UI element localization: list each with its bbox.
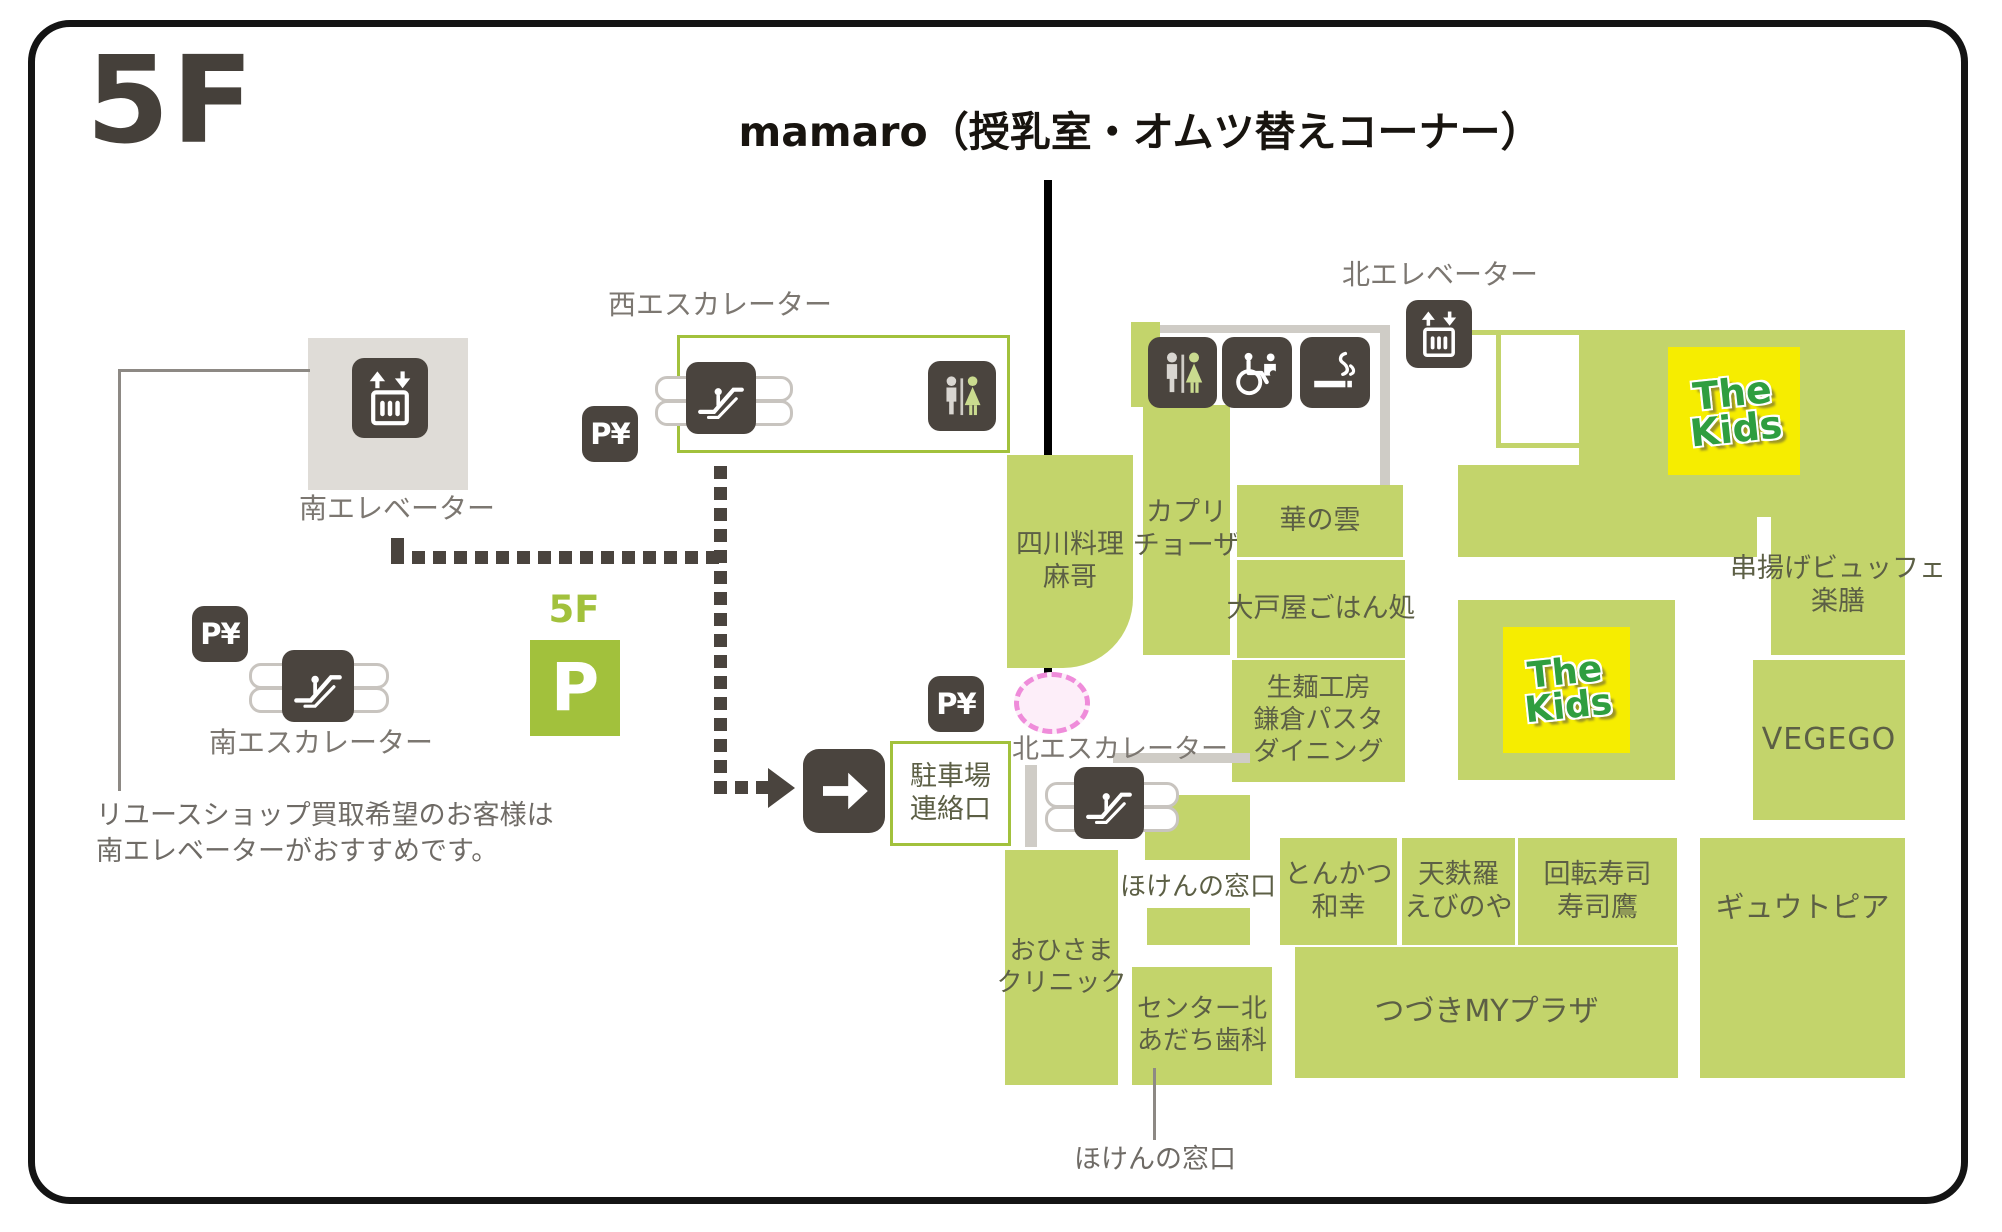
store-gyutopia: ギュウトピア [1700, 838, 1905, 1078]
store-capricciosa: カプリ チョーザ [1143, 405, 1230, 655]
direction-arrow-icon [803, 749, 885, 833]
store-kamakura-pasta: 生麺工房 鎌倉パスタ ダイニング [1232, 660, 1405, 782]
route-dotted-line [714, 466, 727, 792]
wheelchair-accessible-icon [1222, 337, 1292, 408]
mamaro-location-marker [1014, 672, 1090, 734]
store-the-kids-area [1579, 517, 1757, 557]
escalator-icon [282, 650, 354, 722]
parking-icon: P [530, 640, 620, 736]
route-arrowhead [768, 768, 795, 808]
escalator-icon [1074, 767, 1144, 839]
store-kaiten-sushi-sushitaka: 回転寿司 寿司鷹 [1518, 838, 1677, 945]
store-tempura-ebinoya: 天麩羅 えびのや [1402, 838, 1515, 945]
elevator-icon [1406, 300, 1472, 368]
wall [1496, 443, 1582, 448]
wall [1160, 325, 1390, 333]
store-hoken-no-madoguchi-label: ほけんの窓口 [1098, 872, 1298, 904]
store-the-kids-area [1458, 465, 1579, 557]
escalator-icon [686, 362, 756, 434]
route-dotted-line [714, 781, 770, 794]
store-unit [1147, 908, 1250, 945]
store-hana-no-kumo: 華の雲 [1237, 485, 1403, 557]
hoken-no-madoguchi-pointer-label: ほけんの窓口 [1055, 1142, 1255, 1178]
west-escalator-label: 西エスカレーター [600, 288, 840, 322]
north-elevator-label: 北エレベーター [1325, 258, 1555, 292]
smoking-room-icon [1300, 337, 1370, 408]
wall [1025, 765, 1037, 847]
mamaro-annotation: mamaro（授乳室・オムツ替えコーナー） [700, 98, 1580, 158]
store-shisen-ryori-mako: 四川料理 麻哥 [1007, 455, 1133, 668]
leader-line [118, 369, 310, 372]
floor-title: 5F [86, 42, 255, 162]
store-tsuzuki-my-plaza: つづきMYプラザ [1295, 947, 1678, 1078]
store-kushiage-buffet-rakuzen: 串揚げビュッフェ 楽膳 [1771, 517, 1905, 655]
parking-pay-icon: P¥ [192, 606, 248, 662]
parking-pay-icon: P¥ [928, 676, 984, 732]
the-kids-logo: The Kids [1503, 627, 1630, 753]
store-ootoya-gohandokoro: 大戸屋ごはん処 [1237, 560, 1405, 658]
wall [1472, 330, 1579, 335]
parking-gate-entrance: 駐車場 連絡口 [890, 741, 1011, 846]
store-vegego: VEGEGO [1753, 660, 1905, 820]
leader-line [118, 369, 121, 791]
leader-line [1153, 1068, 1156, 1140]
reuse-shop-note: リユースショップ買取希望のお客様は 南エレベーターがおすすめです。 [96, 798, 554, 869]
parking-pay-icon: P¥ [582, 406, 638, 462]
floor-map-5f: 5F mamaro（授乳室・オムツ替えコーナー） 南エレベーター リユースショッ… [0, 0, 2002, 1232]
parking-floor-label: 5F [528, 588, 620, 631]
south-escalator-label: 南エスカレーター [196, 726, 446, 760]
restroom-icon [1148, 337, 1217, 408]
store-ohisama-clinic: おひさま クリニック [1005, 850, 1118, 1085]
store-tonkatsu-wako: とんかつ 和幸 [1280, 838, 1397, 945]
restroom-icon [928, 361, 996, 431]
wall [1496, 330, 1501, 448]
the-kids-logo: The Kids [1668, 347, 1800, 475]
elevator-icon [352, 358, 428, 438]
north-escalator-label: 北エスカレーター [1000, 734, 1240, 766]
south-elevator-label: 南エレベーター [272, 492, 522, 526]
route-dotted-line [391, 551, 721, 564]
